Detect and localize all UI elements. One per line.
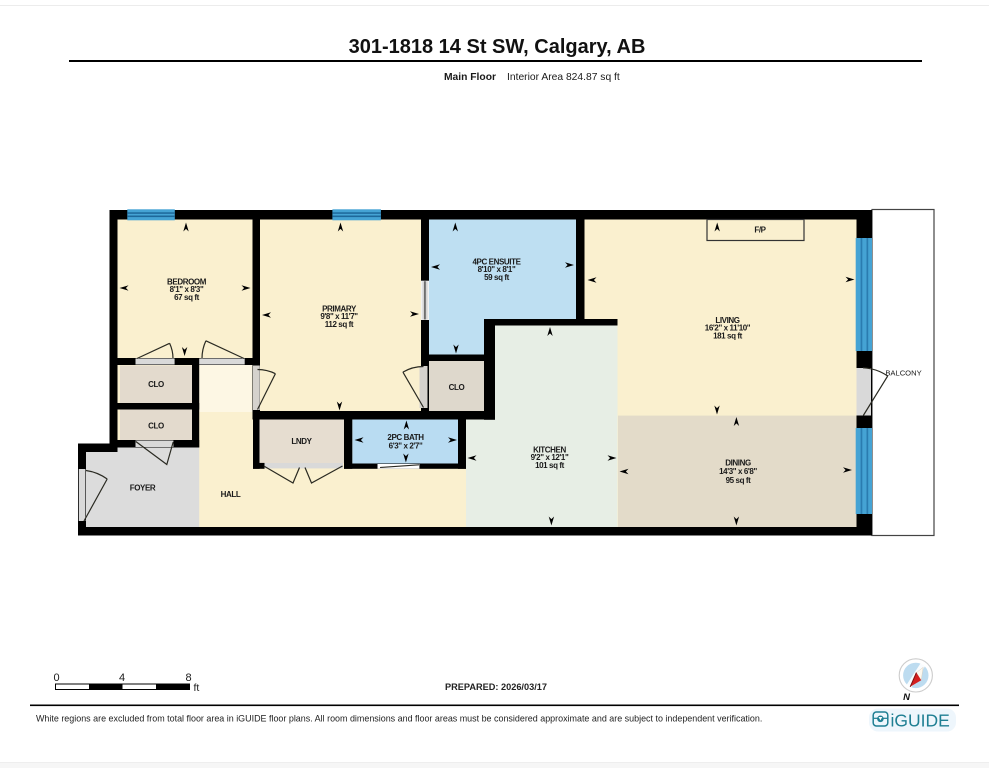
svg-text:181 sq ft: 181 sq ft [713, 331, 743, 340]
svg-text:White regions are excluded fro: White regions are excluded from total fl… [36, 714, 762, 724]
svg-text:8: 8 [185, 672, 191, 684]
svg-text:67 sq ft: 67 sq ft [174, 293, 200, 302]
svg-text:4: 4 [119, 672, 125, 684]
svg-text:LNDY: LNDY [291, 437, 312, 446]
svg-text:101 sq ft: 101 sq ft [535, 461, 565, 470]
svg-text:HALL: HALL [221, 490, 241, 499]
svg-text:CLO: CLO [148, 380, 164, 389]
svg-text:301-1818 14 St SW, Calgary, AB: 301-1818 14 St SW, Calgary, AB [349, 36, 646, 58]
svg-text:CLO: CLO [449, 383, 465, 392]
svg-text:iGUIDE: iGUIDE [891, 711, 950, 731]
svg-text:0: 0 [53, 672, 59, 684]
svg-text:F/P: F/P [754, 226, 766, 235]
svg-text:DINING: DINING [725, 458, 751, 467]
svg-text:PREPARED: 2026/03/17: PREPARED: 2026/03/17 [445, 682, 547, 692]
svg-text:BALCONY: BALCONY [885, 368, 921, 377]
svg-text:FOYER: FOYER [130, 483, 156, 492]
svg-text:Interior Area 824.87 sq ft: Interior Area 824.87 sq ft [507, 72, 620, 83]
svg-text:112 sq ft: 112 sq ft [325, 320, 354, 329]
svg-text:6'3" x 2'7": 6'3" x 2'7" [389, 441, 423, 450]
svg-text:CLO: CLO [148, 421, 164, 430]
svg-text:N: N [903, 692, 911, 703]
svg-text:Main Floor: Main Floor [444, 72, 496, 83]
svg-text:59 sq ft: 59 sq ft [484, 273, 510, 282]
svg-text:ft: ft [194, 682, 200, 694]
svg-text:14'3" x 6'8": 14'3" x 6'8" [719, 467, 757, 476]
svg-text:95 sq ft: 95 sq ft [726, 476, 752, 485]
